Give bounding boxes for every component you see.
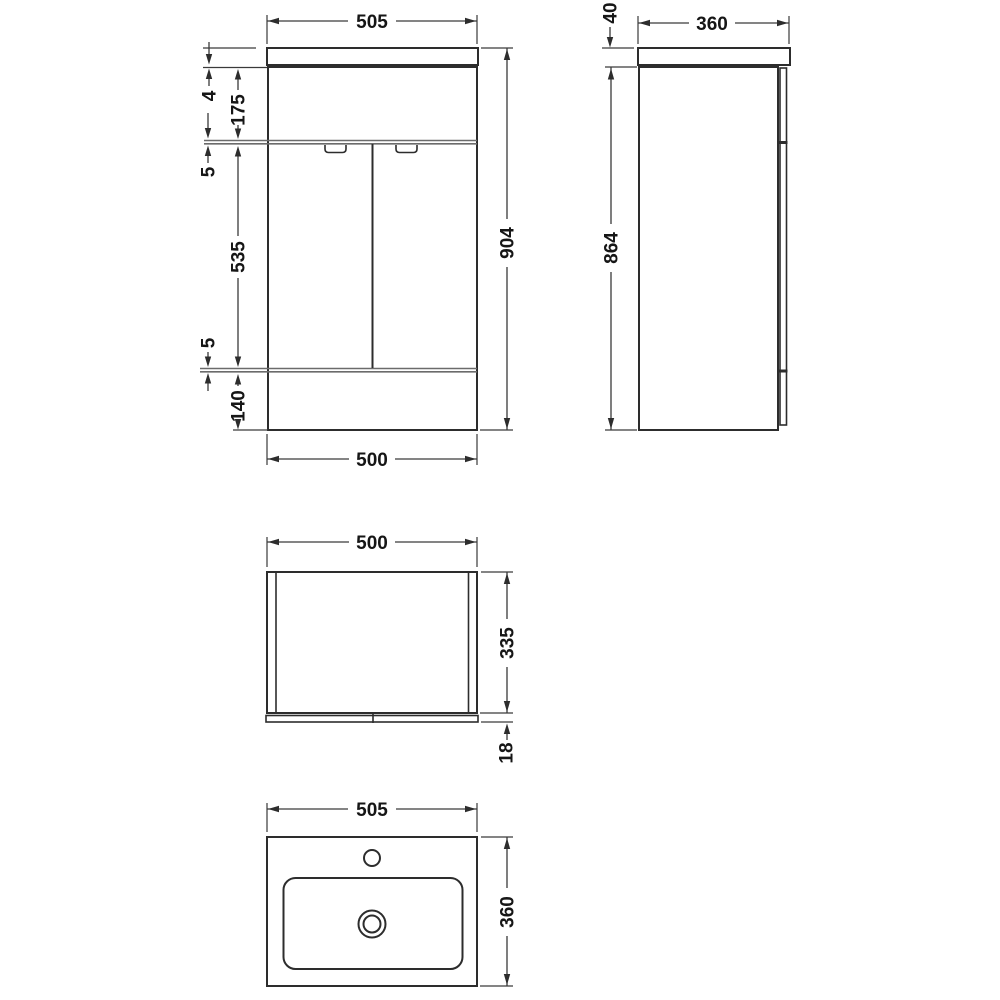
dimension-front-overall-height: 904 (480, 48, 519, 430)
dim-front-width-top: 505 (356, 12, 388, 33)
dimension-plan-depth: 335 (480, 572, 519, 713)
dim-front-gap-lower: 5 (199, 337, 220, 348)
dim-plan-width: 500 (356, 533, 388, 554)
dim-front-door-height: 535 (229, 241, 250, 273)
side-countertop (638, 48, 790, 65)
dim-side-countertop-thickness: 40 (601, 2, 622, 23)
dim-side-carcass-height: 864 (602, 232, 623, 264)
dimension-plan-width: 500 (267, 533, 477, 567)
plan-view: 500 335 18 (266, 533, 519, 767)
dimension-front-width-top: 505 (267, 12, 477, 44)
dim-front-countertop-lip: 4 (200, 90, 221, 101)
basin-waste-inner (364, 916, 381, 933)
plan-carcass-outline (267, 572, 477, 713)
dimension-side-countertop-thickness: 40 (601, 1, 638, 67)
dim-basin-width: 505 (356, 800, 388, 821)
basin-plan-view: 505 360 (267, 800, 519, 986)
dim-plan-depth: 335 (498, 627, 519, 659)
front-countertop (267, 48, 478, 65)
dim-front-plinth-height: 140 (229, 390, 250, 422)
dimension-side-depth: 360 (638, 14, 789, 44)
dimension-front-door-height: 535 (229, 146, 250, 367)
front-gap-upper-lines (204, 141, 477, 144)
dim-front-drawer-height: 175 (229, 94, 250, 126)
basin-bowl (284, 878, 463, 969)
dimension-front-plinth-height: 140 (229, 374, 250, 430)
basin-tap-hole (364, 850, 380, 866)
dimension-basin-depth: 360 (480, 837, 519, 986)
front-right-door-handle (396, 145, 417, 153)
side-cabinet-body (639, 67, 778, 430)
plan-door-front (266, 716, 478, 723)
front-left-door-handle (325, 145, 346, 153)
dimension-basin-width: 505 (267, 800, 477, 832)
dimension-front-drawer-height: 175 (229, 69, 250, 139)
dim-front-width-bottom: 500 (356, 450, 388, 471)
front-gap-lower-lines (200, 369, 477, 372)
front-elevation-view: 505 4 175 (199, 12, 519, 471)
drawing-canvas: 505 4 175 (0, 0, 1000, 1000)
dimension-front-gap-upper: 5 (199, 113, 220, 181)
dim-basin-depth: 360 (498, 896, 519, 928)
dim-front-gap-upper: 5 (199, 166, 220, 177)
dim-front-overall-height: 904 (498, 227, 519, 259)
dimension-front-width-bottom: 500 (267, 434, 477, 471)
dimension-front-gap-lower: 5 (199, 334, 220, 391)
technical-drawing: 505 4 175 (0, 0, 1000, 1000)
dim-plan-door-thickness: 18 (497, 742, 518, 763)
dimension-side-carcass-height: 864 (602, 68, 638, 431)
dim-side-depth: 360 (696, 14, 728, 35)
dimension-plan-door-thickness: 18 (481, 722, 518, 767)
side-elevation-view: 360 40 864 (601, 1, 791, 430)
